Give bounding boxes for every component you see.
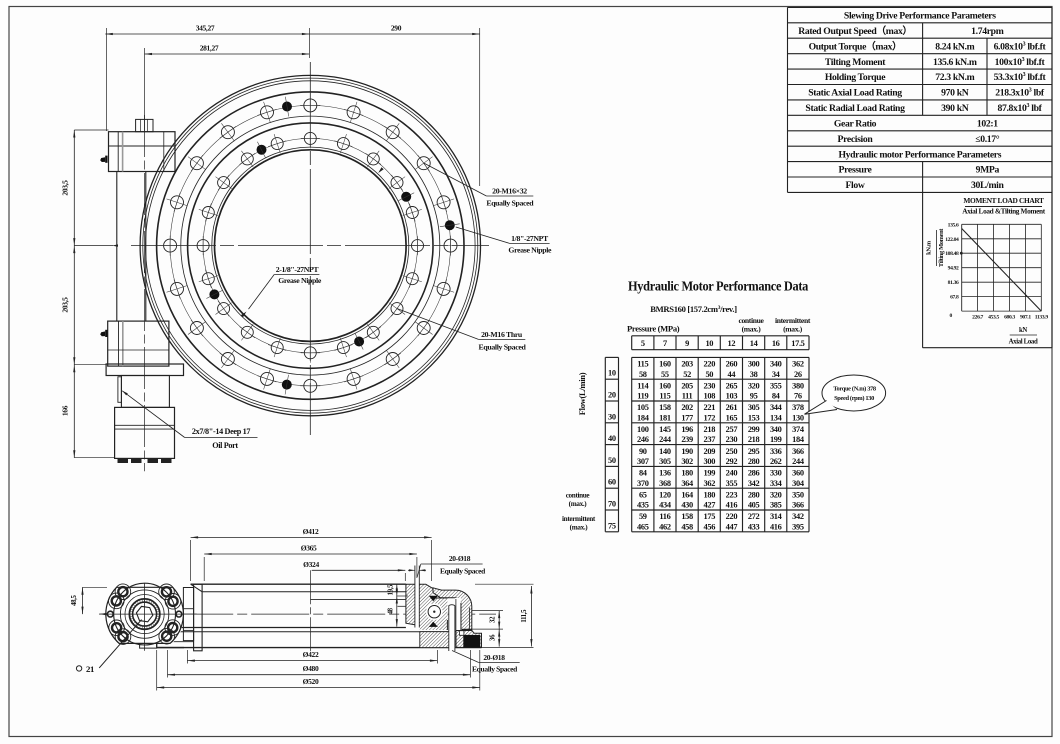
svg-text:Tilting Moment: Tilting Moment bbox=[825, 57, 886, 68]
svg-text:MOMENT LOAD CHART: MOMENT LOAD CHART bbox=[963, 196, 1044, 205]
svg-text:75: 75 bbox=[608, 521, 616, 530]
svg-text:261: 261 bbox=[726, 403, 738, 412]
svg-text:9MPa: 9MPa bbox=[976, 165, 1000, 176]
svg-text:5: 5 bbox=[641, 339, 645, 348]
svg-text:8.24 kN.m: 8.24 kN.m bbox=[935, 41, 974, 52]
svg-text:(max.): (max.) bbox=[783, 325, 803, 334]
svg-text:Equally Spaced: Equally Spaced bbox=[486, 199, 534, 208]
svg-text:196: 196 bbox=[681, 425, 693, 434]
svg-text:20-Ø18: 20-Ø18 bbox=[449, 554, 471, 563]
svg-text:2-1/8"-27NPT: 2-1/8"-27NPT bbox=[276, 265, 320, 274]
svg-text:30L/min: 30L/min bbox=[971, 180, 1005, 191]
svg-text:20-Ø18: 20-Ø18 bbox=[483, 653, 505, 662]
svg-text:435: 435 bbox=[637, 501, 649, 510]
svg-text:184: 184 bbox=[637, 413, 650, 422]
svg-text:280: 280 bbox=[748, 490, 760, 499]
svg-text:145: 145 bbox=[659, 425, 671, 434]
svg-text:299: 299 bbox=[748, 425, 760, 434]
svg-text:Ø412: Ø412 bbox=[303, 527, 319, 536]
svg-text:907.1: 907.1 bbox=[1020, 315, 1031, 321]
svg-text:111: 111 bbox=[682, 392, 693, 401]
svg-text:334: 334 bbox=[770, 479, 783, 488]
svg-text:290: 290 bbox=[391, 24, 402, 33]
svg-text:280: 280 bbox=[748, 457, 760, 466]
svg-text:32: 32 bbox=[490, 616, 497, 623]
svg-text:108: 108 bbox=[704, 392, 716, 401]
svg-text:355: 355 bbox=[770, 381, 782, 390]
svg-text:462: 462 bbox=[659, 522, 671, 531]
svg-text:344: 344 bbox=[770, 403, 783, 412]
svg-text:304: 304 bbox=[792, 479, 805, 488]
svg-text:6.08x103 lbf.ft: 6.08x103 lbf.ft bbox=[994, 41, 1047, 52]
svg-text:260: 260 bbox=[726, 360, 738, 369]
svg-text:250: 250 bbox=[726, 447, 738, 456]
svg-text:136: 136 bbox=[659, 469, 671, 478]
svg-text:122.04: 122.04 bbox=[945, 237, 959, 243]
svg-text:416: 416 bbox=[726, 501, 738, 510]
svg-text:Pressure (MPa): Pressure (MPa) bbox=[627, 324, 680, 334]
svg-text:181: 181 bbox=[659, 413, 671, 422]
svg-text:Holding Torque: Holding Torque bbox=[825, 72, 886, 83]
svg-text:265: 265 bbox=[726, 381, 738, 390]
svg-text:76: 76 bbox=[794, 392, 802, 401]
svg-text:153: 153 bbox=[748, 413, 760, 422]
svg-text:158: 158 bbox=[681, 512, 693, 521]
svg-text:244: 244 bbox=[792, 457, 805, 466]
svg-text:Static Radial Load Rating: Static Radial Load Rating bbox=[805, 103, 905, 114]
svg-text:203: 203 bbox=[681, 360, 693, 369]
svg-text:Speed (rpm) 130: Speed (rpm) 130 bbox=[834, 395, 874, 402]
svg-text:246: 246 bbox=[637, 435, 649, 444]
svg-text:(max.): (max.) bbox=[742, 325, 762, 334]
svg-text:72.3 kN.m: 72.3 kN.m bbox=[935, 72, 974, 83]
svg-text:90: 90 bbox=[639, 447, 647, 456]
svg-text:Slewing Drive Performance Para: Slewing Drive Performance Parameters bbox=[844, 11, 996, 22]
svg-text:345,27: 345,27 bbox=[196, 24, 215, 33]
svg-text:55: 55 bbox=[661, 370, 669, 379]
svg-text:295: 295 bbox=[748, 447, 760, 456]
svg-text:164: 164 bbox=[681, 490, 694, 499]
svg-text:40: 40 bbox=[608, 434, 616, 443]
svg-text:103: 103 bbox=[726, 392, 738, 401]
svg-text:(max.): (max.) bbox=[569, 500, 588, 508]
svg-text:239: 239 bbox=[681, 435, 693, 444]
svg-text:2x7/8"-14 Deep 17: 2x7/8"-14 Deep 17 bbox=[192, 427, 250, 436]
svg-text:226.7: 226.7 bbox=[972, 315, 983, 321]
svg-text:20: 20 bbox=[608, 391, 616, 400]
svg-text:7: 7 bbox=[663, 339, 667, 348]
svg-text:87.8x103 lbf: 87.8x103 lbf bbox=[997, 103, 1042, 114]
svg-text:114: 114 bbox=[637, 381, 649, 390]
svg-text:81.36: 81.36 bbox=[948, 280, 959, 286]
svg-text:Pressure: Pressure bbox=[839, 165, 873, 176]
svg-text:680.3: 680.3 bbox=[1004, 315, 1015, 321]
svg-text:Ø365: Ø365 bbox=[301, 544, 317, 553]
svg-text:257: 257 bbox=[726, 425, 738, 434]
svg-text:230: 230 bbox=[704, 381, 716, 390]
svg-text:199: 199 bbox=[704, 469, 716, 478]
svg-text:302: 302 bbox=[681, 457, 693, 466]
svg-text:190: 190 bbox=[681, 447, 693, 456]
svg-text:166: 166 bbox=[61, 405, 70, 416]
svg-text:433: 433 bbox=[748, 522, 760, 531]
svg-text:30: 30 bbox=[608, 412, 616, 421]
svg-text:50: 50 bbox=[608, 456, 616, 465]
svg-text:105: 105 bbox=[637, 403, 649, 412]
svg-text:203,5: 203,5 bbox=[61, 297, 70, 313]
svg-text:180: 180 bbox=[681, 469, 693, 478]
svg-text:458: 458 bbox=[681, 522, 693, 531]
svg-text:405: 405 bbox=[748, 501, 760, 510]
svg-text:67.8: 67.8 bbox=[950, 295, 959, 301]
svg-text:370: 370 bbox=[637, 479, 649, 488]
svg-text:385: 385 bbox=[770, 501, 782, 510]
svg-text:9: 9 bbox=[685, 339, 689, 348]
svg-text:kN: kN bbox=[1019, 327, 1027, 334]
svg-text:34: 34 bbox=[772, 370, 781, 379]
svg-text:Ø324: Ø324 bbox=[303, 560, 319, 569]
svg-text:intermittent: intermittent bbox=[562, 515, 596, 523]
svg-text:84: 84 bbox=[772, 392, 781, 401]
svg-text:1/8"-27NPT: 1/8"-27NPT bbox=[511, 234, 549, 243]
svg-text:355: 355 bbox=[726, 479, 738, 488]
svg-text:20-M16×32: 20-M16×32 bbox=[492, 187, 527, 196]
svg-text:220: 220 bbox=[726, 512, 738, 521]
svg-text:Tilting Moment: Tilting Moment bbox=[938, 228, 945, 267]
svg-text:340: 340 bbox=[770, 425, 782, 434]
svg-text:434: 434 bbox=[659, 501, 672, 510]
svg-text:342: 342 bbox=[792, 512, 804, 521]
svg-text:102:1: 102:1 bbox=[977, 119, 998, 130]
svg-text:Hydraulic Motor Performance Da: Hydraulic Motor Performance Data bbox=[628, 279, 809, 294]
svg-text:Gear Ratio: Gear Ratio bbox=[834, 119, 877, 130]
svg-text:172: 172 bbox=[704, 413, 716, 422]
svg-text:60: 60 bbox=[608, 478, 616, 487]
svg-text:395: 395 bbox=[792, 522, 804, 531]
svg-text:380: 380 bbox=[792, 381, 804, 390]
svg-text:115: 115 bbox=[659, 392, 670, 401]
svg-text:130: 130 bbox=[792, 413, 804, 422]
svg-text:95: 95 bbox=[750, 392, 758, 401]
svg-text:Axial Load: Axial Load bbox=[1009, 339, 1038, 346]
svg-text:300: 300 bbox=[704, 457, 716, 466]
svg-text:456: 456 bbox=[704, 522, 716, 531]
svg-text:160: 160 bbox=[659, 360, 671, 369]
svg-text:366: 366 bbox=[792, 447, 804, 456]
svg-text:362: 362 bbox=[792, 360, 804, 369]
svg-text:305: 305 bbox=[659, 457, 671, 466]
svg-text:364: 364 bbox=[681, 479, 694, 488]
svg-text:230: 230 bbox=[726, 435, 738, 444]
svg-text:135.6 kN.m: 135.6 kN.m bbox=[933, 57, 977, 68]
svg-text:314: 314 bbox=[770, 512, 783, 521]
svg-text:300: 300 bbox=[748, 360, 760, 369]
svg-text:0: 0 bbox=[950, 313, 953, 319]
svg-text:14: 14 bbox=[750, 339, 759, 348]
svg-text:430: 430 bbox=[681, 501, 693, 510]
svg-text:320: 320 bbox=[748, 381, 760, 390]
svg-text:58: 58 bbox=[639, 370, 647, 379]
svg-text:100: 100 bbox=[637, 425, 649, 434]
svg-text:465: 465 bbox=[637, 522, 649, 531]
svg-text:177: 177 bbox=[681, 413, 693, 422]
svg-text:427: 427 bbox=[704, 501, 716, 510]
svg-text:17.5: 17.5 bbox=[791, 339, 804, 348]
svg-text:175: 175 bbox=[704, 512, 716, 521]
svg-text:Flow(L/min): Flow(L/min) bbox=[577, 372, 587, 415]
svg-text:368: 368 bbox=[659, 479, 671, 488]
svg-text:20-M16 Thru: 20-M16 Thru bbox=[481, 330, 523, 339]
svg-text:120: 120 bbox=[659, 490, 671, 499]
svg-text:366: 366 bbox=[792, 501, 804, 510]
svg-text:205: 205 bbox=[681, 381, 693, 390]
svg-text:360: 360 bbox=[792, 469, 804, 478]
svg-text:BMRS160 [157.2cm3/rev.]: BMRS160 [157.2cm3/rev.] bbox=[650, 304, 737, 314]
svg-text:447: 447 bbox=[726, 522, 738, 531]
svg-text:(max.): (max.) bbox=[570, 524, 589, 532]
svg-text:111,5: 111,5 bbox=[521, 609, 528, 623]
svg-text:342: 342 bbox=[748, 479, 760, 488]
svg-text:Static Axial Load Rating: Static Axial Load Rating bbox=[808, 88, 902, 99]
svg-text:Output Torque（max）: Output Torque（max） bbox=[809, 39, 902, 52]
svg-text:292: 292 bbox=[726, 457, 738, 466]
svg-text:Equally Spaced: Equally Spaced bbox=[440, 567, 486, 576]
svg-text:362: 362 bbox=[704, 479, 716, 488]
svg-text:84: 84 bbox=[639, 469, 648, 478]
svg-text:21: 21 bbox=[86, 664, 94, 674]
svg-text:209: 209 bbox=[704, 447, 716, 456]
svg-text:44: 44 bbox=[728, 370, 737, 379]
svg-text:1133.9: 1133.9 bbox=[1035, 315, 1049, 321]
svg-text:140: 140 bbox=[659, 447, 671, 456]
svg-text:10: 10 bbox=[705, 339, 713, 348]
svg-text:kN.m: kN.m bbox=[926, 240, 933, 255]
svg-text:281,27: 281,27 bbox=[200, 44, 219, 53]
svg-text:336: 336 bbox=[770, 447, 782, 456]
svg-text:202: 202 bbox=[681, 403, 693, 412]
svg-text:48,5: 48,5 bbox=[71, 595, 78, 606]
svg-text:165: 165 bbox=[726, 413, 738, 422]
svg-text:Grease Nipple: Grease Nipple bbox=[508, 246, 552, 255]
svg-text:19,5: 19,5 bbox=[387, 584, 394, 595]
svg-text:Ø520: Ø520 bbox=[303, 677, 319, 686]
svg-text:59: 59 bbox=[639, 512, 647, 521]
svg-text:50: 50 bbox=[705, 370, 713, 379]
svg-text:52: 52 bbox=[683, 370, 691, 379]
svg-text:continue: continue bbox=[566, 492, 590, 500]
svg-text:272: 272 bbox=[748, 512, 760, 521]
svg-text:12: 12 bbox=[728, 339, 736, 348]
svg-text:218: 218 bbox=[704, 425, 716, 434]
svg-text:416: 416 bbox=[770, 522, 782, 531]
svg-text:Axial Load &Tilting Moment: Axial Load &Tilting Moment bbox=[962, 207, 1046, 216]
svg-text:340: 340 bbox=[770, 360, 782, 369]
svg-text:Precision: Precision bbox=[838, 134, 874, 145]
svg-text:48: 48 bbox=[387, 607, 394, 614]
svg-text:70: 70 bbox=[608, 500, 616, 509]
svg-text:Ø480: Ø480 bbox=[303, 664, 319, 673]
svg-text:223: 223 bbox=[726, 490, 738, 499]
svg-text:378: 378 bbox=[792, 403, 804, 412]
svg-text:184: 184 bbox=[792, 435, 805, 444]
svg-text:1.74rpm: 1.74rpm bbox=[971, 26, 1004, 37]
svg-text:218.3x103 lbf: 218.3x103 lbf bbox=[995, 88, 1045, 99]
svg-text:158: 158 bbox=[659, 403, 671, 412]
svg-text:Flow: Flow bbox=[845, 180, 864, 191]
svg-text:≤0.17°: ≤0.17° bbox=[975, 134, 1000, 145]
svg-text:94.92: 94.92 bbox=[948, 266, 959, 272]
svg-text:262: 262 bbox=[770, 457, 782, 466]
svg-text:Ø422: Ø422 bbox=[303, 650, 319, 659]
svg-text:108.48: 108.48 bbox=[945, 251, 959, 257]
svg-text:305: 305 bbox=[748, 403, 760, 412]
svg-text:203,5: 203,5 bbox=[61, 180, 70, 196]
svg-text:330: 330 bbox=[770, 469, 782, 478]
svg-text:244: 244 bbox=[659, 435, 672, 444]
svg-text:180: 180 bbox=[704, 490, 716, 499]
svg-text:221: 221 bbox=[704, 403, 716, 412]
svg-text:100x103 lbf.ft: 100x103 lbf.ft bbox=[995, 57, 1046, 68]
svg-text:286: 286 bbox=[748, 469, 760, 478]
svg-text:970 kN: 970 kN bbox=[941, 88, 969, 99]
svg-text:16: 16 bbox=[772, 339, 780, 348]
svg-text:240: 240 bbox=[726, 469, 738, 478]
svg-text:Hydraulic motor Performance Pa: Hydraulic motor Performance Parameters bbox=[838, 149, 1001, 160]
svg-text:218: 218 bbox=[748, 435, 760, 444]
svg-text:134: 134 bbox=[770, 413, 783, 422]
svg-text:199: 199 bbox=[770, 435, 782, 444]
svg-text:307: 307 bbox=[637, 457, 649, 466]
svg-text:36: 36 bbox=[490, 634, 497, 641]
svg-text:Equally Spaced: Equally Spaced bbox=[472, 665, 518, 674]
svg-text:38: 38 bbox=[750, 370, 758, 379]
svg-text:237: 237 bbox=[704, 435, 716, 444]
svg-text:390 kN: 390 kN bbox=[941, 103, 969, 114]
svg-text:116: 116 bbox=[659, 512, 670, 521]
svg-text:135.6: 135.6 bbox=[948, 222, 959, 228]
svg-text:65: 65 bbox=[639, 490, 647, 499]
svg-text:53.3x103 lbf.ft: 53.3x103 lbf.ft bbox=[994, 72, 1047, 83]
svg-text:160: 160 bbox=[659, 381, 671, 390]
svg-text:115: 115 bbox=[637, 360, 648, 369]
svg-text:374: 374 bbox=[792, 425, 805, 434]
svg-text:Rated Output Speed（max）: Rated Output Speed（max） bbox=[798, 24, 912, 37]
svg-text:Grease Nipple: Grease Nipple bbox=[278, 276, 322, 285]
svg-text:26: 26 bbox=[794, 370, 802, 379]
svg-text:10: 10 bbox=[608, 369, 616, 378]
svg-text:Oil Port: Oil Port bbox=[212, 441, 238, 450]
svg-text:220: 220 bbox=[704, 360, 716, 369]
svg-text:Equally Spaced: Equally Spaced bbox=[479, 343, 527, 352]
svg-text:320: 320 bbox=[770, 490, 782, 499]
svg-text:350: 350 bbox=[792, 490, 804, 499]
svg-text:119: 119 bbox=[637, 392, 648, 401]
svg-text:Torque (N.m) 378: Torque (N.m) 378 bbox=[833, 386, 876, 393]
svg-text:453.5: 453.5 bbox=[988, 315, 999, 321]
